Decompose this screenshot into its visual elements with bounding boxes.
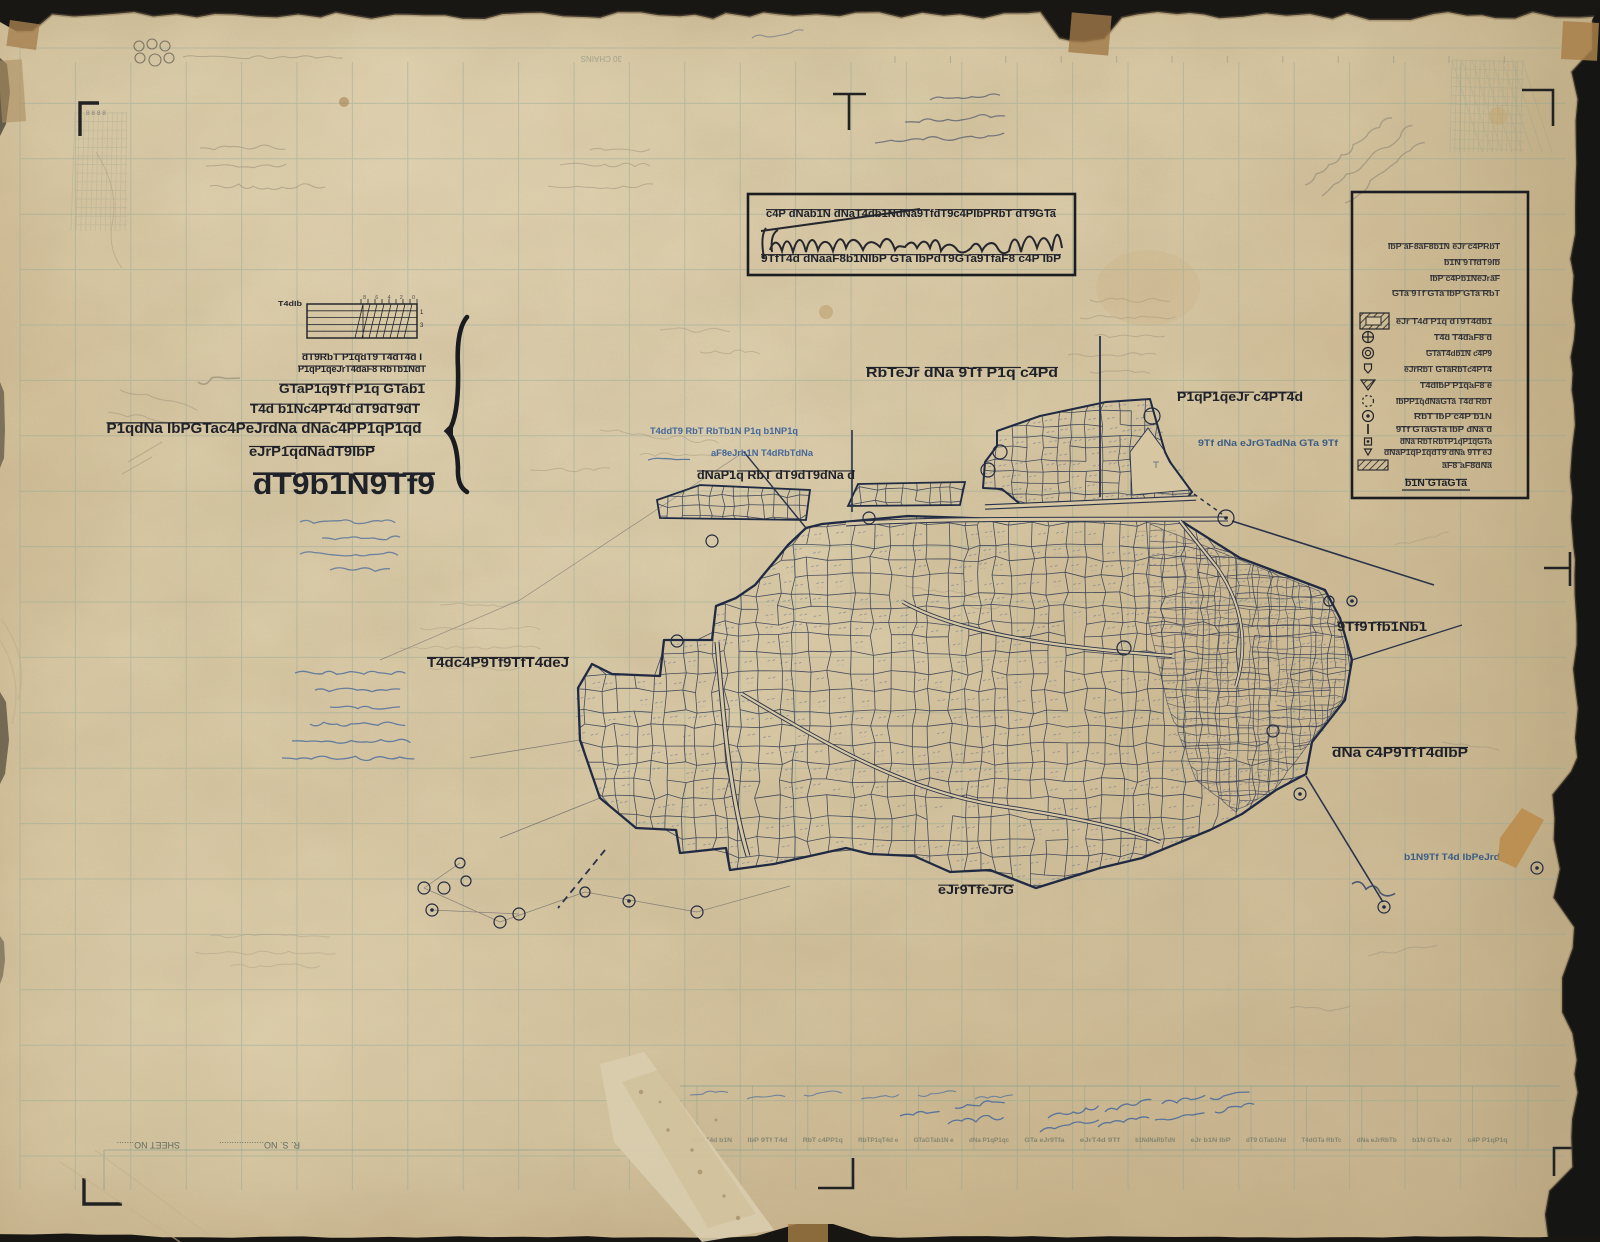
svg-text:b1N GTa eJr: b1N GTa eJr bbox=[1412, 1137, 1453, 1144]
svg-text:dT9b1N9Tf9: dT9b1N9Tf9 bbox=[253, 468, 435, 501]
svg-text:b1NdNaRbTdN: b1NdNaRbTdN bbox=[1135, 1137, 1175, 1144]
svg-text:T4dIbP P1qaF8 e: T4dIbP P1qaF8 e bbox=[1420, 381, 1493, 390]
svg-text:IbPP1qdNaGTa T4d RbT: IbPP1qdNaGTa T4d RbT bbox=[1396, 397, 1492, 406]
svg-text:eJrT4d 9Tf: eJrT4d 9Tf bbox=[1080, 1137, 1121, 1144]
svg-text:RbTP1qT4d e: RbTP1qT4d e bbox=[858, 1137, 899, 1144]
svg-text:aF8 aF8dNa: aF8 aF8dNa bbox=[1442, 461, 1493, 470]
svg-text:T4d T4daF8 d: T4d T4daF8 d bbox=[1434, 333, 1492, 342]
svg-text:GTaGTab1N e: GTaGTab1N e bbox=[914, 1137, 955, 1144]
svg-text:b1N9Tf T4d IbPeJrd: b1N9Tf T4d IbPeJrd bbox=[1404, 852, 1500, 862]
svg-text:IbP c4Pb1NeJraF: IbP c4Pb1NeJraF bbox=[1430, 274, 1500, 283]
svg-text:dT9 GTab1Nd: dT9 GTab1Nd bbox=[1246, 1137, 1286, 1144]
svg-text:T4ddT9 RbT RbTb1N P1q b1NP1q: T4ddT9 RbT RbTb1N P1q b1NP1q bbox=[650, 426, 798, 436]
svg-text:dNaP1q RbT dT9dT9dNa d: dNaP1q RbT dT9dT9dNa d bbox=[697, 468, 855, 482]
svg-text:P1qdNa IbPGTac4PeJrdNa dNac4PP: P1qdNa IbPGTac4PeJrdNa dNac4PP1qP1qd bbox=[107, 420, 422, 437]
svg-text:c4P P1qP1q: c4P P1qP1q bbox=[1468, 1137, 1508, 1144]
svg-text:GTaP1q9Tf P1q GTab1: GTaP1q9Tf P1q GTab1 bbox=[279, 381, 425, 396]
svg-text:T4dIb: T4dIb bbox=[278, 301, 302, 308]
svg-text:dNaP1qP1qdT9 dNa 9Tf eJ: dNaP1qP1qdT9 dNa 9Tf eJ bbox=[1384, 448, 1492, 457]
svg-text:IbP aF8aF8b1N eJr c4PRbT: IbP aF8aF8b1N eJr c4PRbT bbox=[1388, 242, 1500, 251]
svg-text:GTa eJr9Tfa: GTa eJr9Tfa bbox=[1024, 1137, 1065, 1144]
svg-text:eJr9TfeJrG: eJr9TfeJrG bbox=[938, 882, 1014, 897]
svg-text:9Tf9Tfb1Nb1: 9Tf9Tfb1Nb1 bbox=[1337, 619, 1427, 634]
svg-text:RbTeJr dNa 9Tf P1q c4Pd: RbTeJr dNa 9Tf P1q c4Pd bbox=[866, 364, 1058, 380]
svg-text:P1qP1qeJrT4daF8 RbTb1NdT: P1qP1qeJrT4daF8 RbTb1NdT bbox=[298, 364, 427, 374]
svg-text:b1N GTaGTa: b1N GTaGTa bbox=[1405, 478, 1467, 489]
svg-text:dNa RbTRbTP1qP1qGTa: dNa RbTRbTP1qP1qGTa bbox=[1400, 437, 1493, 446]
svg-text:8 8 8 8: 8 8 8 8 bbox=[86, 110, 106, 117]
svg-text:30 CHAINS: 30 CHAINS bbox=[581, 54, 622, 63]
svg-text:dT9RbT P1qdT9 T4dT4d I: dT9RbT P1qdT9 T4dT4d I bbox=[302, 352, 422, 362]
svg-text:dNa c4P9TfT4dIbP: dNa c4P9TfT4dIbP bbox=[1332, 744, 1468, 760]
svg-text:eJr b1N IbP: eJr b1N IbP bbox=[1191, 1137, 1231, 1144]
svg-text:T4d b1Nc4PT4d dT9dT9dT: T4d b1Nc4PT4d dT9dT9dT bbox=[250, 401, 420, 416]
svg-text:aF8eJrb1N T4dRbTdNa: aF8eJrb1N T4dRbTdNa bbox=[711, 448, 814, 458]
svg-text:dNa P1qP1qc: dNa P1qP1qc bbox=[969, 1137, 1010, 1144]
svg-text:eJrRbT GTaRbTc4PT4: eJrRbT GTaRbTc4PT4 bbox=[1404, 365, 1493, 374]
svg-text:T4dGTa RbTc: T4dGTa RbTc bbox=[1301, 1137, 1342, 1144]
svg-text:eJrP1qdNadT9IbP: eJrP1qdNadT9IbP bbox=[249, 443, 375, 459]
svg-text:GTa 9Tf GTa IbP GTa RbT: GTa 9Tf GTa IbP GTa RbT bbox=[1392, 289, 1500, 298]
svg-text:IbP 9Tf T4d: IbP 9Tf T4d bbox=[747, 1137, 787, 1144]
svg-text:RbT c4PP1q: RbT c4PP1q bbox=[803, 1137, 843, 1144]
svg-text:P1qP1qeJr c4PT4d: P1qP1qeJr c4PT4d bbox=[1177, 389, 1303, 404]
svg-text:R. S. NO..................: R. S. NO.................. bbox=[219, 1140, 300, 1150]
svg-text:eJr T4d P1q dT9T4db1: eJr T4d P1q dT9T4db1 bbox=[1396, 317, 1493, 326]
svg-text:GTaT4db1N c4P9: GTaT4db1N c4P9 bbox=[1426, 349, 1493, 358]
svg-text:SHEET NO.......: SHEET NO....... bbox=[117, 1140, 180, 1150]
svg-text:b1N 9TfdT9Ib: b1N 9TfdT9Ib bbox=[1444, 258, 1500, 267]
svg-text:9TfT4d dNaaF8b1NIbP GTa IbPdT9: 9TfT4d dNaaF8b1NIbP GTa IbPdT9GTa9TfaF8 … bbox=[761, 253, 1061, 265]
svg-text:9Tf GTaGTa IbP dNa d: 9Tf GTaGTa IbP dNa d bbox=[1396, 425, 1492, 434]
svg-text:dNa eJrRbTb: dNa eJrRbTb bbox=[1357, 1137, 1397, 1144]
svg-text:RbT IbP c4P b1N: RbT IbP c4P b1N bbox=[1414, 412, 1492, 421]
svg-text:9Tf dNa eJrGTadNa GTa 9Tf: 9Tf dNa eJrGTadNa GTa 9Tf bbox=[1198, 438, 1339, 448]
svg-text:8 6 4 2 0: 8 6 4 2 0 bbox=[363, 295, 415, 301]
